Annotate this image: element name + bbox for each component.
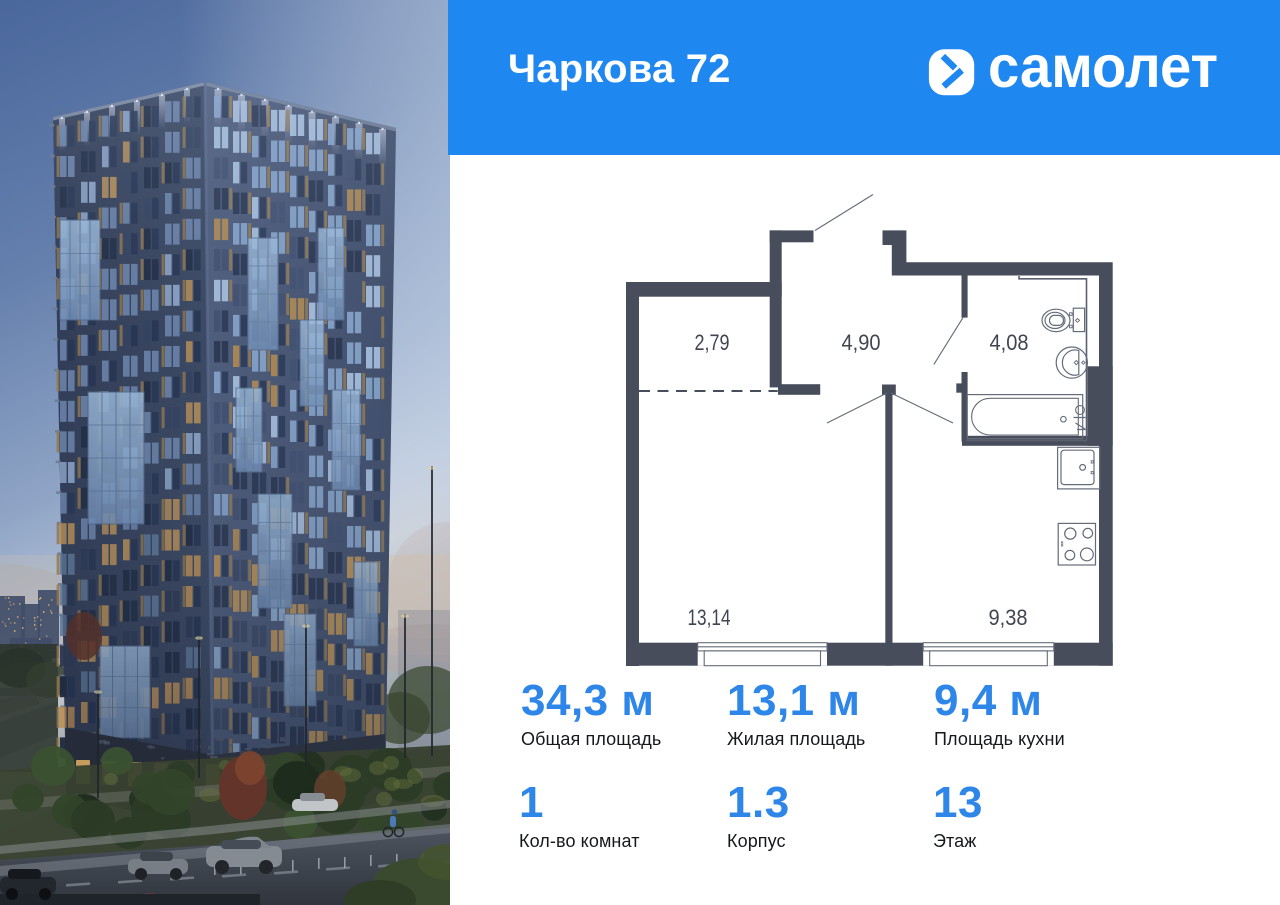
svg-text:4,90: 4,90 (842, 330, 881, 355)
svg-text:4,08: 4,08 (990, 330, 1029, 355)
svg-text:2,79: 2,79 (695, 330, 730, 355)
svg-text:9,38: 9,38 (989, 605, 1028, 630)
svg-text:самолет: самолет (988, 40, 1218, 100)
svg-text:13,14: 13,14 (688, 605, 731, 630)
